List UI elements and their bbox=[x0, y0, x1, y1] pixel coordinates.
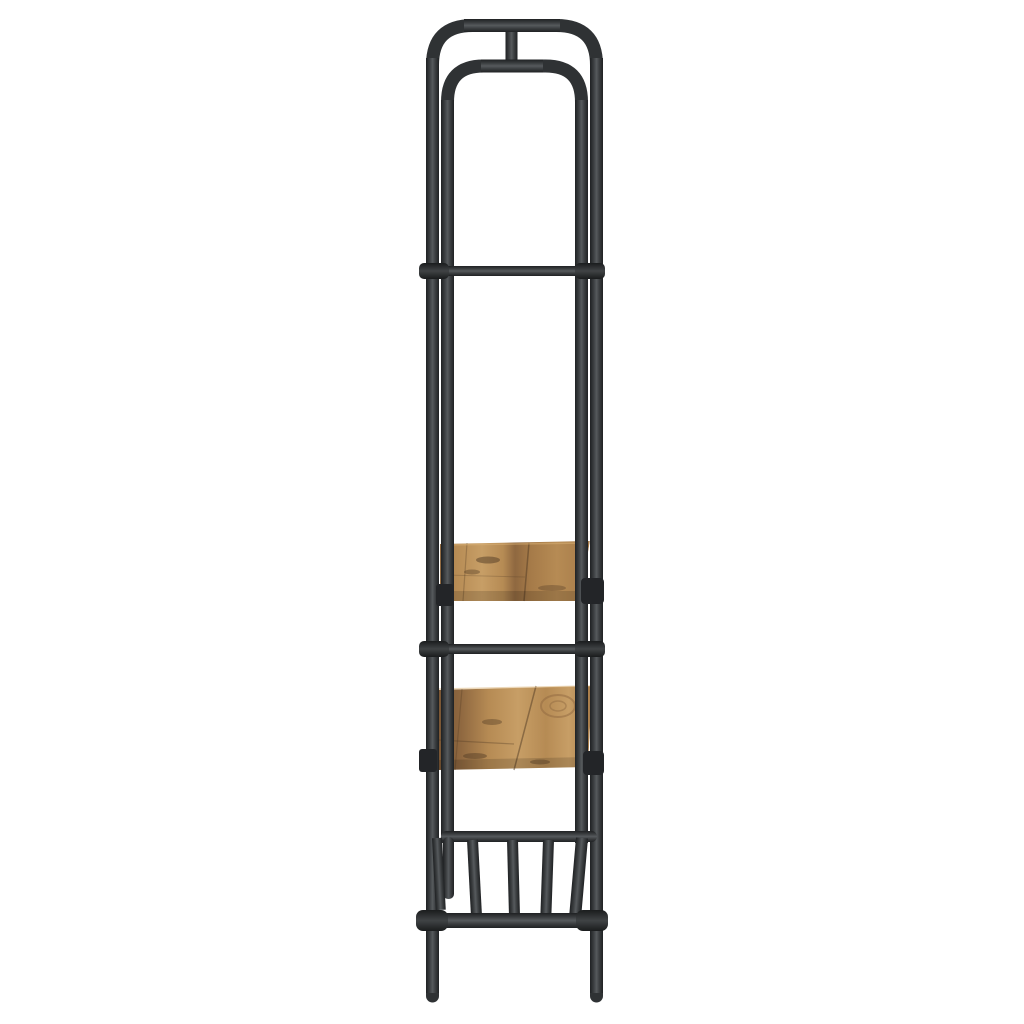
slat-1 bbox=[467, 840, 482, 920]
upper-shelf-left-bracket bbox=[436, 584, 454, 606]
slat-shelf-right-side-tube bbox=[569, 837, 588, 918]
slat-3 bbox=[540, 840, 554, 920]
lower-shelf-right-bracket bbox=[583, 751, 604, 775]
inner-left-upright bbox=[441, 100, 454, 843]
outer-arch-top-tube bbox=[464, 19, 560, 32]
upper-crossbar-left-fitting bbox=[419, 263, 449, 279]
slat-shelf-rim bbox=[441, 831, 597, 842]
middle-crossbar bbox=[419, 641, 605, 657]
upper-crossbar-right-fitting bbox=[575, 263, 605, 279]
lower-shelf bbox=[438, 686, 592, 770]
slat-shelf bbox=[432, 831, 597, 920]
base-bar-left-fitting bbox=[416, 910, 448, 931]
upper-crossbar bbox=[419, 263, 605, 279]
slat-2 bbox=[507, 840, 520, 920]
product-photo bbox=[0, 0, 1024, 1024]
upper-shelf bbox=[440, 541, 590, 601]
upper-crossbar-tube bbox=[430, 266, 594, 276]
middle-crossbar-right-fitting bbox=[575, 641, 605, 657]
middle-crossbar-tube bbox=[430, 644, 594, 654]
upper-shelf-right-bracket bbox=[581, 578, 604, 604]
outer-right-upright bbox=[590, 58, 603, 993]
inner-arch-top-tube bbox=[481, 60, 543, 73]
middle-crossbar-left-fitting bbox=[419, 641, 449, 657]
lower-shelf-left-bracket bbox=[419, 749, 437, 772]
product-image-canvas bbox=[0, 0, 1024, 1024]
inner-right-upright bbox=[575, 100, 588, 843]
base-bar-right-fitting bbox=[576, 910, 608, 931]
base-bar bbox=[416, 910, 608, 931]
